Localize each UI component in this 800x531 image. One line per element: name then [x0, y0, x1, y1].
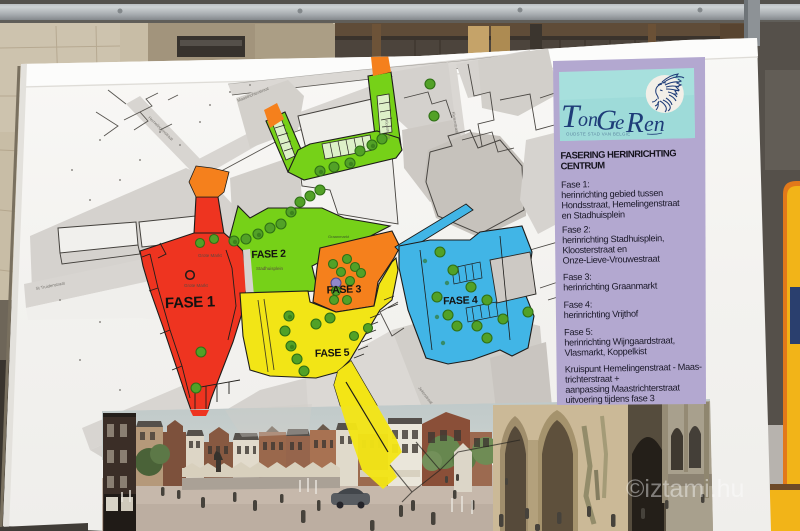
- svg-text:Fase 2:: Fase 2:: [562, 224, 591, 235]
- svg-text:uitvoering tijdens fase 3: uitvoering tijdens fase 3: [565, 393, 654, 405]
- svg-text:en Stadhuisplein: en Stadhuisplein: [562, 209, 626, 220]
- svg-text:herinrichting Vrijthof: herinrichting Vrijthof: [564, 309, 639, 321]
- svg-text:CENTRUM: CENTRUM: [561, 160, 606, 172]
- svg-text:e: e: [615, 110, 624, 134]
- svg-text:Fase 5:: Fase 5:: [564, 327, 593, 338]
- svg-text:FASE 3: FASE 3: [326, 283, 361, 296]
- svg-text:on: on: [578, 109, 598, 131]
- svg-text:Vlasmarkt, Koppelkist: Vlasmarkt, Koppelkist: [564, 346, 647, 358]
- svg-text:Fase 3:: Fase 3:: [563, 272, 592, 283]
- svg-text:OUDSTE STAD VAN BELGIE: OUDSTE STAD VAN BELGIE: [566, 132, 631, 137]
- svg-text:FASE 5: FASE 5: [315, 347, 350, 360]
- svg-text:en: en: [644, 111, 665, 136]
- svg-text:©iztami.hu: ©iztami.hu: [626, 475, 744, 503]
- svg-text:Grote Markt: Grote Markt: [198, 253, 223, 258]
- svg-text:herinrichting Graanmarkt: herinrichting Graanmarkt: [563, 281, 658, 293]
- svg-text:FASE 1: FASE 1: [165, 293, 215, 312]
- svg-text:FASE 4: FASE 4: [443, 294, 478, 307]
- svg-text:Stadhuisplein: Stadhuisplein: [256, 266, 284, 271]
- svg-text:Graanmarkt: Graanmarkt: [328, 234, 350, 239]
- svg-text:Onze-Lieve-Vrouwestraat: Onze-Lieve-Vrouwestraat: [562, 254, 660, 266]
- svg-text:Grote Markt: Grote Markt: [184, 283, 209, 288]
- svg-text:Fase 1:: Fase 1:: [561, 179, 590, 190]
- svg-text:Fase 4:: Fase 4:: [563, 299, 592, 310]
- svg-text:FASE 2: FASE 2: [251, 248, 286, 261]
